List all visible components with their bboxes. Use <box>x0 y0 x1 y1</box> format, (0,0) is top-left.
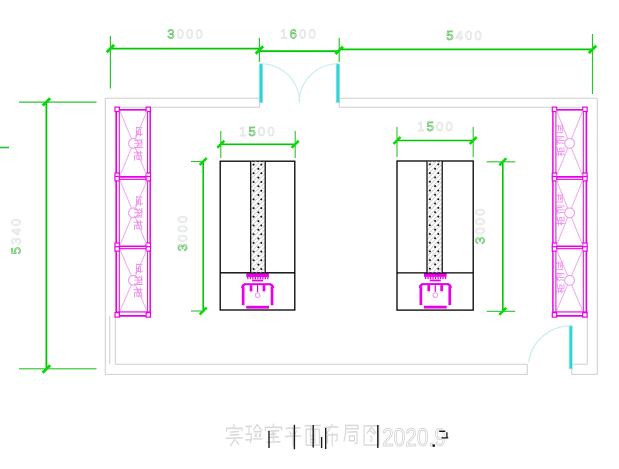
svg-text:1600: 1600 <box>280 27 318 42</box>
svg-text:3000: 3000 <box>175 214 190 252</box>
svg-text:3000: 3000 <box>472 206 487 244</box>
svg-text:2020.9: 2020.9 <box>382 424 446 452</box>
svg-text:5340: 5340 <box>9 217 24 255</box>
svg-text:3000: 3000 <box>167 27 205 42</box>
svg-text:1500: 1500 <box>239 124 277 139</box>
svg-text:5400: 5400 <box>446 28 484 43</box>
svg-text:1500: 1500 <box>417 119 455 134</box>
